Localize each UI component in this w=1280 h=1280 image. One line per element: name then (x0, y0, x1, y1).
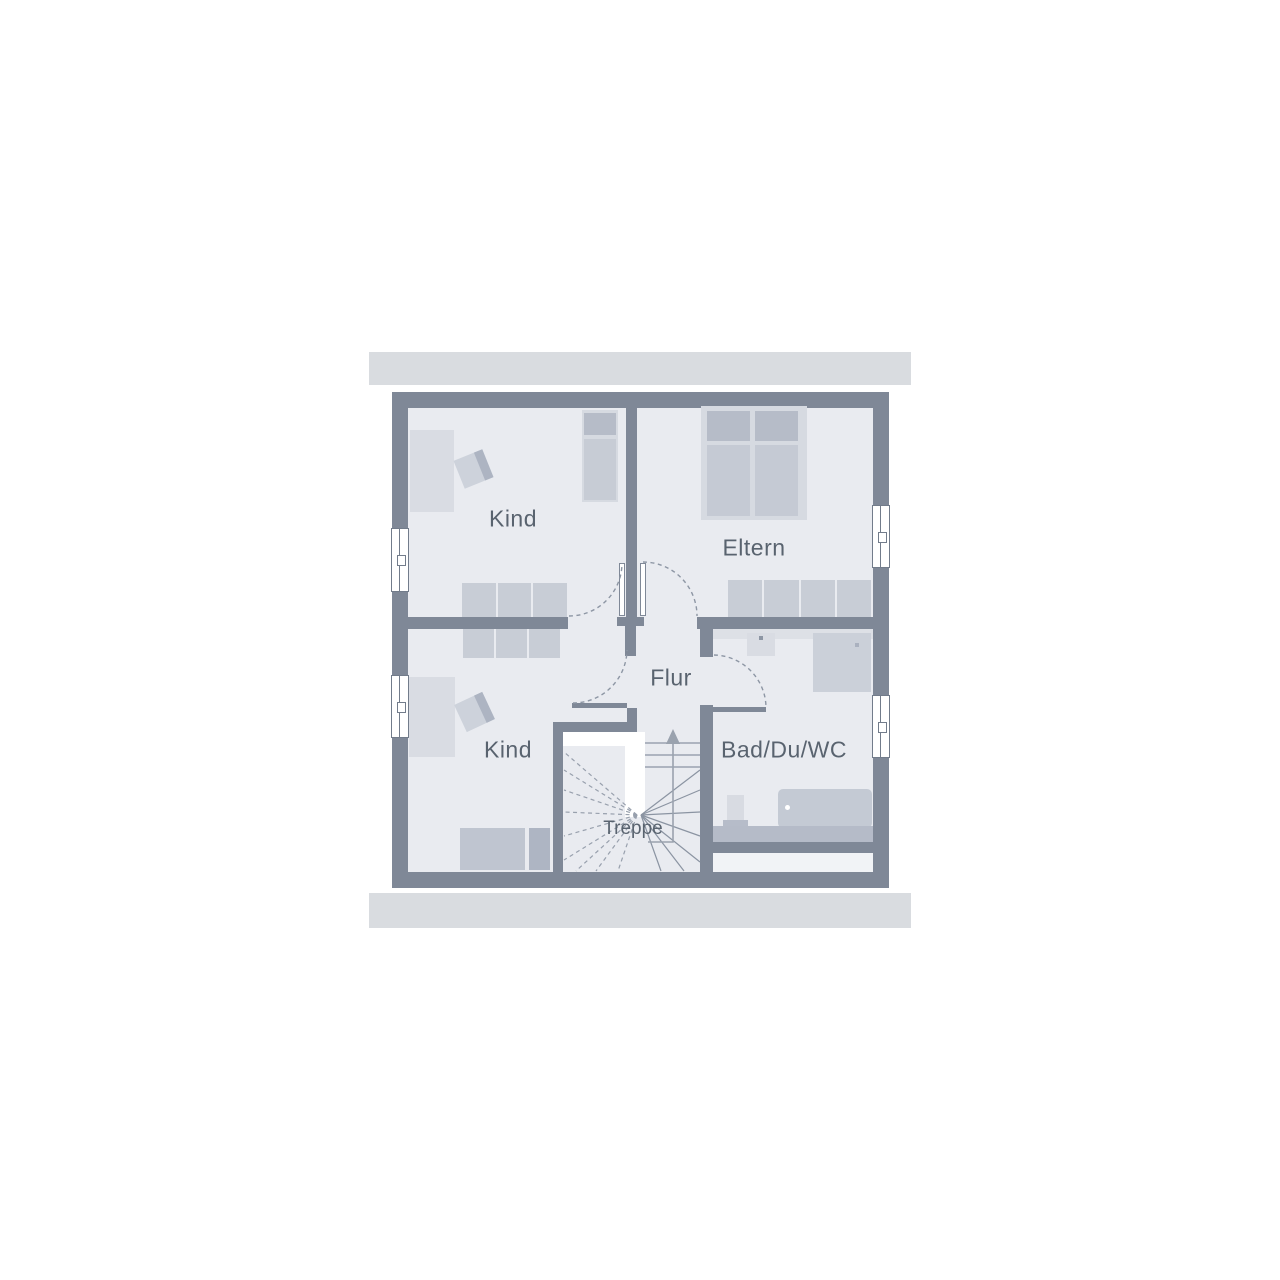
room-label-kind-bottom: Kind (484, 737, 532, 764)
room-label-eltern: Eltern (722, 535, 785, 562)
room-label-treppe: Treppe (603, 818, 663, 840)
room-label-kind-top: Kind (489, 506, 537, 533)
plan-linework (0, 0, 1280, 1280)
room-label-flur: Flur (650, 665, 692, 692)
stair-treads (641, 743, 700, 871)
floor-plan-canvas: Kind Eltern Kind Flur Bad/Du/WC Treppe (0, 0, 1280, 1280)
room-label-bath: Bad/Du/WC (721, 737, 847, 764)
stair-treads-dashed (564, 752, 637, 871)
